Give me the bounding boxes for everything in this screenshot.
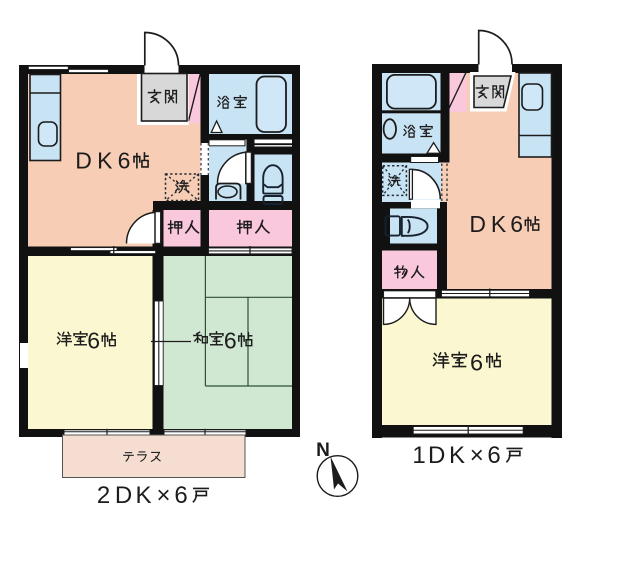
svg-text:6: 6 (470, 350, 483, 376)
svg-text:6: 6 (118, 148, 131, 174)
svg-text:6: 6 (87, 328, 100, 354)
svg-text:K: K (135, 482, 151, 509)
svg-text:6: 6 (510, 211, 523, 237)
svg-text:6: 6 (174, 482, 187, 509)
svg-text:6: 6 (224, 328, 237, 354)
svg-text:K: K (97, 148, 113, 174)
svg-text:6: 6 (487, 442, 500, 469)
svg-text:1: 1 (412, 442, 425, 469)
svg-text:D: D (115, 482, 132, 509)
svg-text:2: 2 (97, 482, 110, 509)
svg-text:D: D (428, 442, 445, 469)
svg-text:D: D (469, 211, 486, 237)
svg-text:×: × (470, 442, 484, 469)
svg-text:×: × (156, 482, 170, 509)
svg-text:K: K (491, 211, 507, 237)
svg-text:D: D (75, 148, 92, 174)
svg-text:K: K (449, 442, 465, 469)
svg-text:N: N (316, 440, 330, 461)
